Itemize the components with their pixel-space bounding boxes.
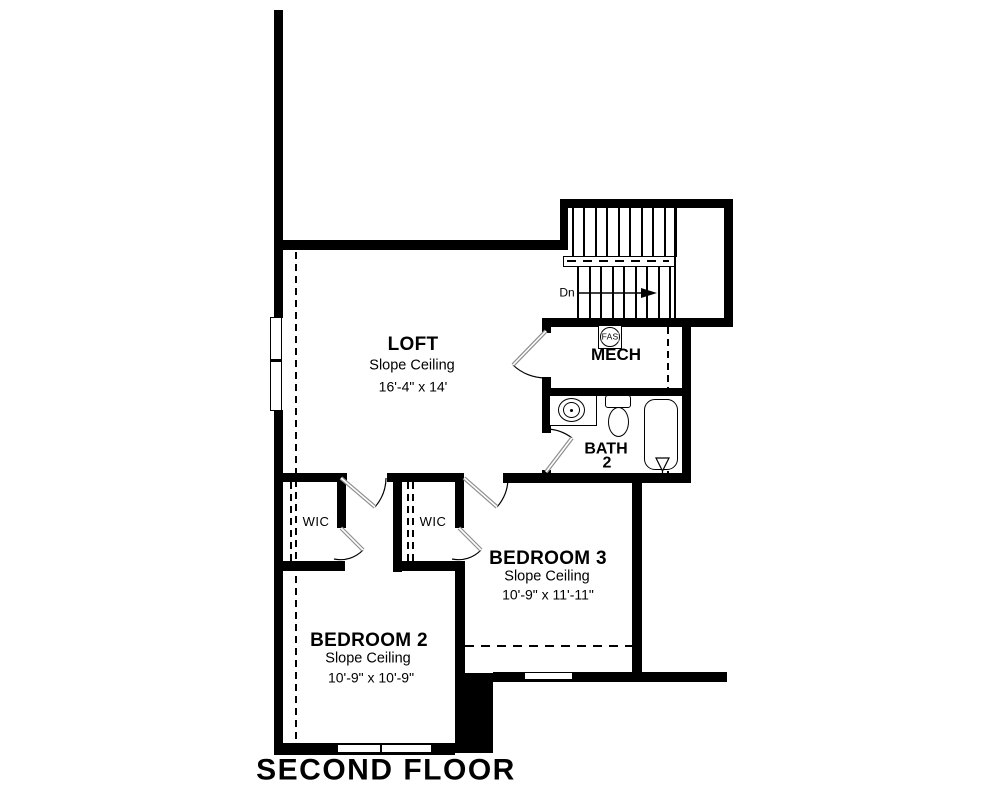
right-wic-right-wall — [455, 473, 464, 528]
left-wic-bottom-wall — [274, 561, 345, 571]
stair-tread — [595, 208, 597, 257]
loft-name: LOFT — [388, 335, 439, 355]
stair-rail-dashed-line — [567, 260, 669, 262]
slope-line-bedroom3 — [465, 645, 632, 647]
mech-door — [513, 331, 546, 378]
toilet-bowl — [608, 407, 629, 437]
bedroom3-dims: 10'-9" x 11'-11" — [502, 588, 594, 603]
slope-line-left-main — [295, 252, 297, 743]
stair-tread — [600, 267, 602, 318]
mech-name: MECH — [591, 346, 641, 364]
bedroom3-name: BEDROOM 3 — [489, 549, 607, 569]
left-wic-right-wall — [337, 473, 346, 528]
left-wic-door — [334, 528, 363, 560]
stair-tread — [641, 208, 643, 257]
stair-down-label: Dn — [559, 287, 574, 300]
right-wic-name: WIC — [420, 515, 447, 529]
loft-window-tick — [271, 359, 281, 362]
right-wic-door — [452, 528, 481, 560]
mech-right-wall — [682, 327, 691, 483]
stair-tread — [664, 208, 666, 257]
left-wall-lower — [274, 410, 283, 755]
stair-tread — [658, 267, 660, 318]
stair-tread — [623, 267, 625, 318]
bedroom-divider-wall — [455, 561, 465, 675]
slope-line-right-wic-a — [407, 482, 409, 561]
bedroom2-passage-door — [341, 478, 386, 507]
bath-bottom-wall — [503, 473, 691, 483]
bedroom-corner-pier — [455, 673, 493, 753]
stair-tread — [606, 208, 608, 257]
sink-drain — [570, 409, 573, 412]
bathtub — [644, 399, 678, 470]
furnace-label: FAS — [602, 333, 619, 342]
stair-tread — [583, 208, 585, 257]
slope-line-left-wic — [290, 482, 292, 561]
left-wic-name: WIC — [303, 515, 330, 529]
stair-tread — [618, 208, 620, 257]
stair-tread — [669, 267, 671, 318]
bath-door — [546, 429, 572, 472]
bedroom2-name: BEDROOM 2 — [310, 631, 428, 651]
stair-left-wall — [560, 199, 568, 244]
loft-window — [270, 317, 282, 411]
floor-title: SECOND FLOOR — [256, 754, 516, 786]
slope-line-right-wic-b — [412, 482, 414, 561]
stair-tread — [577, 267, 579, 318]
bedroom2-ceiling: Slope Ceiling — [325, 651, 410, 666]
stair-tread — [589, 267, 591, 318]
loft-ceiling: Slope Ceiling — [369, 358, 454, 373]
bedroom3-right-wall — [632, 483, 642, 673]
bedroom3-ceiling: Slope Ceiling — [504, 569, 589, 584]
stair-tread — [572, 208, 574, 257]
stair-right-wall — [724, 199, 733, 327]
bath-number: 2 — [603, 456, 612, 473]
bedroom2-dims: 10'-9" x 10'-9" — [328, 671, 414, 686]
bedroom2-window-tick — [380, 745, 382, 752]
left-wall-upper — [274, 10, 283, 318]
stair-tread — [652, 208, 654, 257]
right-wic-left-wall — [393, 473, 402, 572]
stair-landing-rail — [563, 256, 676, 267]
stair-tread — [629, 208, 631, 257]
stair-tread — [612, 267, 614, 318]
bedroom3-window — [524, 672, 573, 680]
mech-left-wall-stub-top — [542, 327, 551, 333]
loft-top-wall — [283, 240, 568, 250]
stair-tread — [646, 267, 648, 318]
stair-bottom-wall — [542, 318, 733, 327]
stair-tread — [635, 267, 637, 318]
bedroom2-window — [337, 744, 432, 753]
loft-dims: 16'-4" x 14' — [379, 380, 448, 395]
stair-flight-edge — [674, 208, 676, 318]
stair-top-wall — [560, 199, 733, 208]
right-wic-bottom-wall — [393, 561, 463, 571]
bedroom3-door — [464, 478, 508, 507]
second-floor-plan: FAS — [0, 0, 1000, 800]
